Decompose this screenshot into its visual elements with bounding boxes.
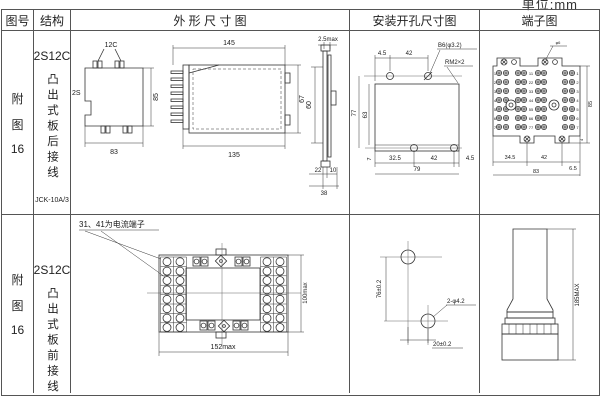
dim-152max: 152max bbox=[211, 344, 236, 351]
dim-10: 10 bbox=[330, 168, 337, 174]
dim-77: 77 bbox=[352, 109, 358, 116]
model-label: 2S12C bbox=[34, 49, 70, 63]
dim-42: 42 bbox=[406, 51, 413, 57]
row1-outline-cell: 12C 2S 85 83 bbox=[71, 31, 350, 215]
svg-text:55: 55 bbox=[529, 107, 534, 112]
current-terminal-note: 31、41为电流端子 bbox=[79, 219, 145, 229]
row2-mounting-cell: 76±0.2 20±0.2 2-φ4.2 bbox=[350, 215, 480, 393]
dim-25max: 2.5max bbox=[318, 37, 338, 43]
header-fig-no: 图号 bbox=[2, 10, 34, 31]
dim-32-5: 32.5 bbox=[389, 156, 401, 162]
svg-text:3: 3 bbox=[576, 89, 579, 94]
dim-2s: 2S bbox=[72, 90, 81, 97]
datasheet-page: 单位:mm 图号 结构 外 形 尺 寸 图 安装开孔尺寸图 端子图 附 图 16… bbox=[0, 0, 600, 400]
fig-number: 16 bbox=[11, 323, 24, 337]
front-view: 12C 2S 85 83 bbox=[72, 42, 160, 156]
mount-type-label: 凸出式板后接线 bbox=[44, 73, 60, 182]
row1-fig-number: 附 图 16 bbox=[2, 31, 34, 215]
row1-terminal-cell: φ6 1 2 3 bbox=[480, 31, 599, 215]
fig-char: 图 bbox=[11, 116, 23, 133]
terminal-grid bbox=[496, 70, 574, 129]
svg-text:22: 22 bbox=[529, 80, 534, 85]
dim-4-5b: 4.5 bbox=[466, 156, 475, 162]
header-mounting: 安装开孔尺寸图 bbox=[350, 10, 480, 31]
dim-185max: 185MAX bbox=[575, 283, 581, 306]
dim-42b: 42 bbox=[431, 156, 438, 162]
svg-text:6: 6 bbox=[576, 116, 579, 121]
row2-terminal-drawing: 185MAX bbox=[480, 215, 598, 392]
svg-text:66: 66 bbox=[529, 116, 534, 121]
model-label: 2S12C bbox=[34, 263, 70, 277]
dim-85: 85 bbox=[153, 93, 160, 101]
header-terminal: 端子图 bbox=[480, 10, 599, 31]
row1-mounting-drawing: 4.5 42 B6(φ3.2) RM2×2 77 63 bbox=[350, 31, 479, 214]
header-structure-label: 结构 bbox=[40, 12, 64, 29]
hole-label: B6(φ3.2) bbox=[438, 43, 462, 49]
terminal-row-numbers-right: 1 2 3 4 5 6 7 bbox=[576, 71, 579, 130]
dim-12c: 12C bbox=[105, 42, 118, 49]
fig-char: 图 bbox=[11, 297, 23, 314]
svg-text:5: 5 bbox=[576, 107, 579, 112]
product-label: JCK-10A/3 bbox=[35, 197, 69, 204]
dim-83: 83 bbox=[110, 149, 118, 156]
fig-char: 附 bbox=[11, 271, 23, 288]
row1-outline-drawing: 12C 2S 85 83 bbox=[71, 31, 349, 214]
bottom-screws bbox=[200, 320, 248, 331]
svg-text:33: 33 bbox=[529, 89, 534, 94]
header-structure: 结构 bbox=[34, 10, 71, 31]
dim-34-5: 34.5 bbox=[505, 155, 516, 161]
dim-85t: 85 bbox=[588, 101, 594, 107]
dim-76: 76±0.2 bbox=[377, 279, 383, 298]
flange-view: 2.5max 60 22 10 38 bbox=[306, 37, 339, 197]
row2-terminal-cell: 185MAX bbox=[480, 215, 599, 393]
header-outline-label: 外 形 尺 寸 图 bbox=[173, 12, 246, 29]
header-fig-no-label: 图号 bbox=[5, 12, 29, 29]
row2-outline-drawing: 31、41为电流端子 bbox=[71, 215, 349, 392]
dim-145: 145 bbox=[223, 40, 235, 47]
mount-type-label: 凸出式板前接线 bbox=[44, 287, 60, 393]
dim-20: 20±0.2 bbox=[433, 342, 452, 348]
dim-6-5: 6.5 bbox=[569, 166, 577, 172]
row1-mounting-cell: 4.5 42 B6(φ3.2) RM2×2 77 63 bbox=[350, 31, 480, 215]
terminal-top-label: φ6 bbox=[556, 40, 562, 45]
dim-135: 135 bbox=[228, 152, 240, 159]
header-terminal-label: 端子图 bbox=[521, 12, 557, 29]
row2-fig-number: 附 图 16 bbox=[2, 215, 34, 393]
fig-char: 附 bbox=[11, 90, 23, 107]
dim-22: 22 bbox=[315, 168, 322, 174]
svg-text:44: 44 bbox=[529, 98, 534, 103]
dim-63: 63 bbox=[363, 111, 369, 118]
drawing-table: 图号 结构 外 形 尺 寸 图 安装开孔尺寸图 端子图 附 图 16 2S12C… bbox=[1, 9, 600, 396]
dim-83t: 83 bbox=[533, 169, 539, 175]
svg-text:1: 1 bbox=[576, 71, 579, 76]
svg-text:4: 4 bbox=[576, 98, 579, 103]
row2-mounting-drawing: 76±0.2 20±0.2 2-φ4.2 bbox=[350, 215, 479, 392]
row2-structure: 2S12C 凸出式板前接线 JCK-10A/3 bbox=[34, 215, 71, 393]
terminal-pair-numbers: 11 22 33 44 55 66 77 bbox=[529, 71, 534, 130]
thread-label: RM2×2 bbox=[445, 60, 465, 66]
svg-text:11: 11 bbox=[529, 71, 534, 76]
fig-number: 16 bbox=[11, 142, 24, 156]
row2-outline-cell: 31、41为电流端子 bbox=[71, 215, 350, 393]
dim-42t: 42 bbox=[541, 155, 547, 161]
dim-79: 79 bbox=[414, 167, 421, 173]
dim-4-5: 4.5 bbox=[378, 51, 387, 57]
dim-7: 7 bbox=[367, 157, 373, 160]
dim-38: 38 bbox=[321, 191, 328, 197]
svg-text:2: 2 bbox=[576, 80, 579, 85]
side-view: 145 135 67 bbox=[171, 40, 306, 159]
svg-text:7: 7 bbox=[576, 125, 579, 130]
header-mounting-label: 安装开孔尺寸图 bbox=[372, 12, 456, 29]
dim-67: 67 bbox=[299, 95, 306, 103]
top-screws bbox=[193, 255, 250, 266]
row1-structure: 2S12C 凸出式板后接线 JCK-10A/3 bbox=[34, 31, 71, 215]
dim-100max: 100max bbox=[303, 282, 309, 303]
hole-callout: 2-φ4.2 bbox=[447, 299, 465, 305]
row1-terminal-drawing: φ6 1 2 3 bbox=[480, 31, 598, 214]
dim-60: 60 bbox=[306, 101, 313, 109]
header-outline: 外 形 尺 寸 图 bbox=[71, 10, 350, 31]
svg-text:77: 77 bbox=[529, 125, 534, 130]
